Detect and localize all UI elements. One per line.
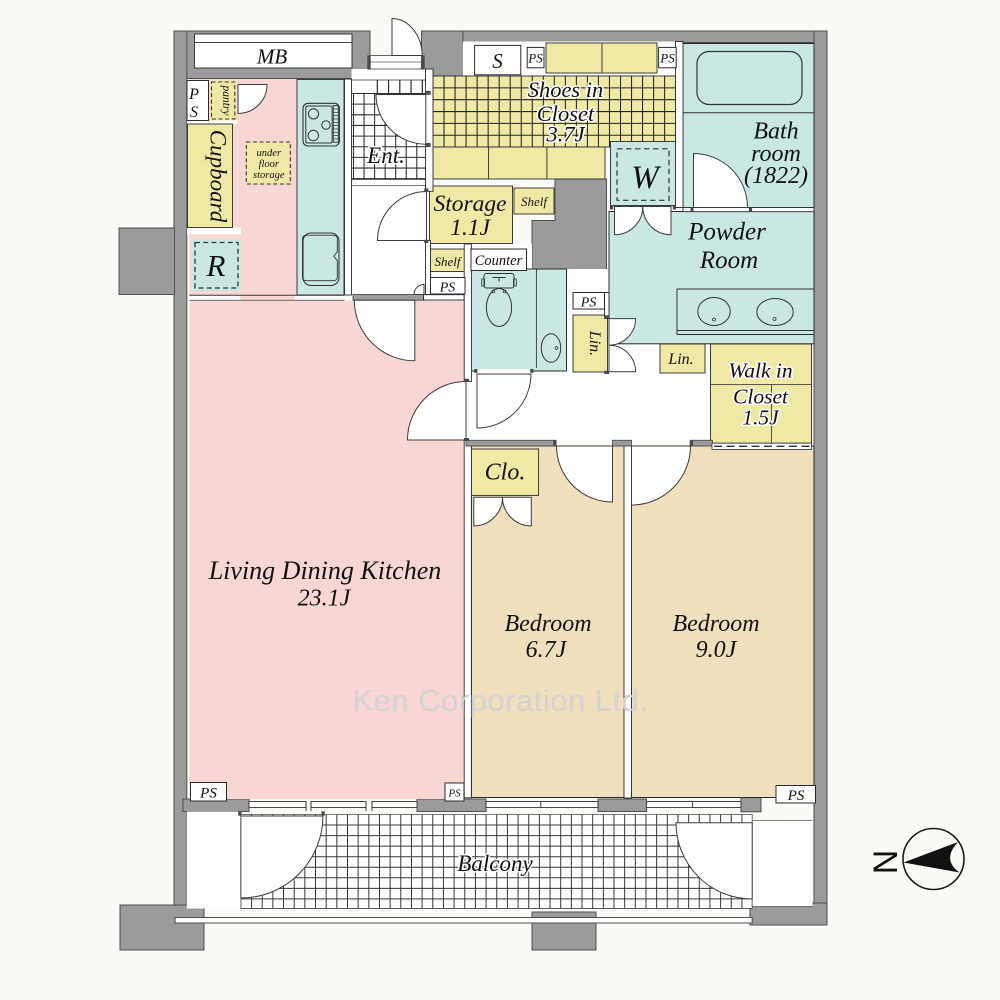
svg-text:PS: PS: [447, 788, 461, 800]
svg-text:Counter: Counter: [475, 253, 523, 269]
svg-text:1.1J: 1.1J: [450, 215, 491, 241]
svg-text:S: S: [492, 49, 503, 73]
svg-text:Room: Room: [699, 247, 758, 274]
svg-text:Ent.: Ent.: [366, 143, 405, 168]
svg-text:pantry: pantry: [220, 84, 232, 116]
svg-text:PS: PS: [580, 296, 597, 311]
svg-text:PS: PS: [199, 786, 217, 802]
svg-text:N: N: [867, 850, 905, 875]
svg-text:PS: PS: [439, 281, 456, 296]
svg-text:MB: MB: [256, 45, 287, 69]
svg-text:Ken Corporation Ltd.: Ken Corporation Ltd.: [352, 683, 648, 718]
svg-text:(1822): (1822): [744, 163, 808, 189]
svg-text:PS: PS: [787, 788, 805, 804]
svg-text:storage: storage: [253, 170, 285, 181]
svg-text:Walk in: Walk in: [728, 359, 792, 383]
svg-text:6.7J: 6.7J: [526, 637, 568, 663]
svg-text:Storage: Storage: [433, 191, 506, 217]
svg-text:Clo.: Clo.: [485, 460, 526, 486]
svg-text:Powder: Powder: [687, 219, 766, 246]
svg-text:Bedroom: Bedroom: [504, 611, 591, 637]
svg-text:1.5J: 1.5J: [742, 406, 780, 430]
svg-text:Lin.: Lin.: [667, 351, 693, 368]
svg-text:Living Dining Kitchen: Living Dining Kitchen: [208, 556, 442, 585]
svg-text:Shelf: Shelf: [521, 194, 549, 209]
svg-text:Cupboard: Cupboard: [206, 130, 231, 223]
svg-text:under: under: [257, 148, 282, 159]
svg-text:R: R: [206, 248, 226, 283]
svg-text:floor: floor: [259, 159, 280, 170]
svg-text:P: P: [188, 86, 199, 103]
svg-text:S: S: [190, 104, 198, 121]
svg-text:PS: PS: [527, 51, 543, 66]
svg-text:W: W: [631, 160, 661, 196]
svg-text:9.0J: 9.0J: [696, 637, 738, 663]
svg-text:Bedroom: Bedroom: [672, 611, 759, 637]
svg-text:23.1J: 23.1J: [298, 586, 352, 612]
svg-text:Shoes in: Shoes in: [528, 77, 604, 102]
svg-text:Lin.: Lin.: [586, 330, 603, 356]
svg-text:PS: PS: [659, 51, 675, 66]
svg-text:Shelf: Shelf: [435, 254, 463, 269]
svg-text:3.7J: 3.7J: [545, 122, 585, 147]
svg-text:Balcony: Balcony: [457, 851, 533, 876]
